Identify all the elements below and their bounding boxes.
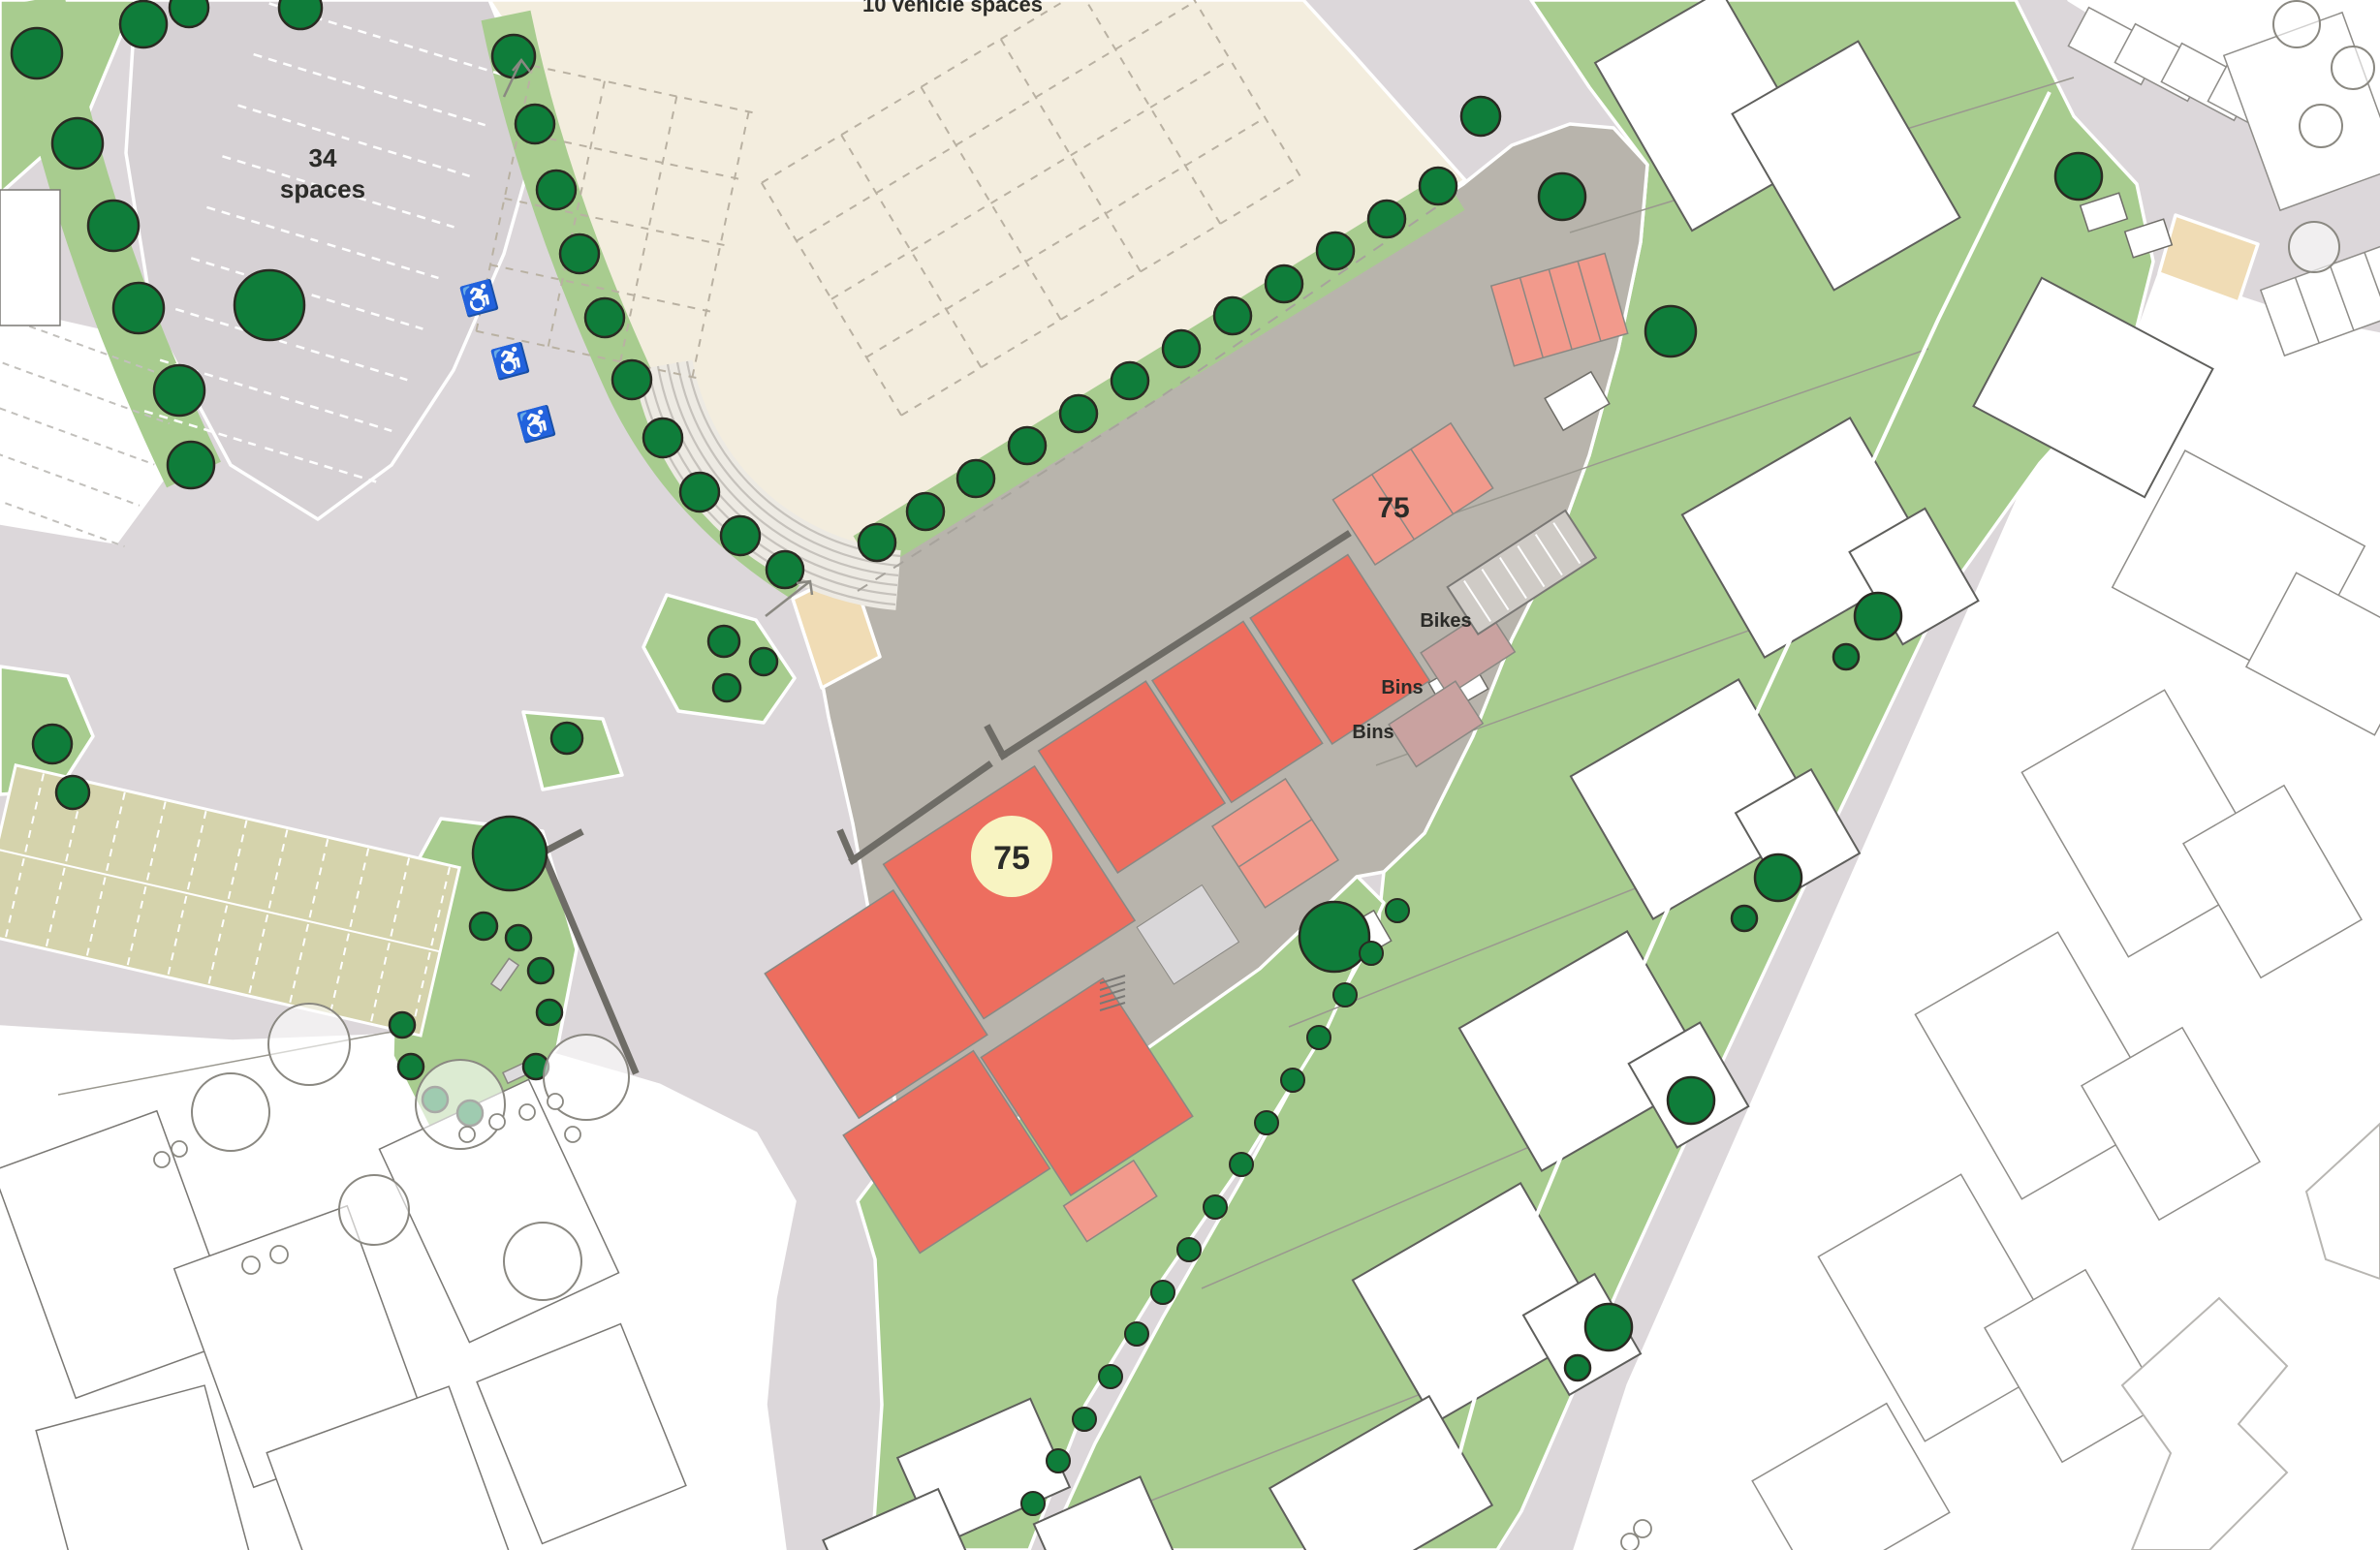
tree-dark-32 xyxy=(33,725,72,763)
tree-dark-34 xyxy=(551,723,582,754)
tree-dark-15 xyxy=(612,360,651,399)
tree-hedge-2 xyxy=(1333,983,1357,1007)
tree-dark-57 xyxy=(1585,1304,1632,1350)
tree-hedge-9 xyxy=(1151,1281,1174,1304)
label-10-vehicle-spaces: 10 vehicle spaces xyxy=(862,0,1043,16)
tree-dark-38 xyxy=(473,817,547,890)
tree-dark-44 xyxy=(390,1012,415,1038)
label-unit-75-carport: 75 xyxy=(1377,492,1409,524)
tree-dark-28 xyxy=(1266,265,1302,302)
label-unit-75-main: 75 xyxy=(993,840,1030,877)
tree-outline-2 xyxy=(339,1175,409,1245)
shrub-3 xyxy=(489,1114,505,1130)
tree-hedge-4 xyxy=(1281,1069,1304,1092)
tree-dark-52 xyxy=(1855,593,1901,639)
tree-hedge-11 xyxy=(1099,1365,1122,1388)
shrub-1 xyxy=(270,1246,288,1263)
tree-dark-37 xyxy=(713,674,740,701)
tree-dark-35 xyxy=(708,626,739,657)
label-bins-1: Bins xyxy=(1381,677,1423,698)
tree-hedge-0 xyxy=(1386,899,1409,922)
tree-dark-31 xyxy=(1420,168,1456,204)
tree-dark-30 xyxy=(1368,201,1405,237)
tree-dark-20 xyxy=(859,524,895,561)
tree-outline-6 xyxy=(2273,1,2320,47)
tree-hedge-5 xyxy=(1255,1111,1278,1134)
tree-dark-6 xyxy=(168,442,214,488)
site-plan-map: ♿♿♿10 vehicle spaces34spaces7575BikesBin… xyxy=(0,0,2380,1550)
tree-hedge-1 xyxy=(1360,942,1383,965)
tree-dark-16 xyxy=(643,418,682,457)
tree-dark-45 xyxy=(398,1054,423,1079)
tree-dark-18 xyxy=(721,516,760,555)
tree-dark-58 xyxy=(1565,1355,1590,1380)
house-bottom_left-6 xyxy=(0,190,60,325)
tree-dark-2 xyxy=(52,118,103,169)
tree-dark-21 xyxy=(907,493,944,530)
tree-outline-1 xyxy=(268,1004,350,1085)
tree-dark-4 xyxy=(113,283,164,333)
tree-dark-36 xyxy=(750,648,777,675)
tree-hedge-12 xyxy=(1073,1408,1096,1431)
label-34: 34 xyxy=(309,143,337,172)
tree-dark-41 xyxy=(528,958,553,983)
tree-dark-23 xyxy=(1009,427,1046,464)
tree-dark-56 xyxy=(1668,1077,1714,1124)
label-bikes: Bikes xyxy=(1420,610,1471,632)
tree-dark-22 xyxy=(957,460,994,497)
site-plan-page: ♿♿♿10 vehicle spaces34spaces7575BikesBin… xyxy=(0,0,2380,1550)
shrub-4 xyxy=(519,1104,535,1120)
tree-dark-42 xyxy=(537,1000,562,1025)
tree-hedge-13 xyxy=(1047,1449,1070,1472)
tree-dark-24 xyxy=(1060,395,1097,432)
tree-hedge-6 xyxy=(1230,1153,1253,1176)
shrub-10 xyxy=(172,1141,187,1157)
shrub-8 xyxy=(1634,1520,1651,1537)
tree-dark-12 xyxy=(537,170,576,209)
tree-dark-1 xyxy=(120,1,167,47)
tree-dark-26 xyxy=(1163,330,1200,367)
tree-outline-9 xyxy=(2289,222,2339,272)
tree-dark-55 xyxy=(1732,906,1757,931)
tree-hedge-3 xyxy=(1307,1026,1331,1049)
tree-dark-40 xyxy=(506,925,531,950)
tree-dark-50 xyxy=(1645,306,1696,356)
tree-dark-17 xyxy=(680,473,719,511)
shrub-7 xyxy=(1621,1534,1639,1550)
tree-dark-11 xyxy=(516,105,554,143)
tree-outline-5 xyxy=(504,1223,581,1300)
tree-dark-14 xyxy=(585,298,624,337)
tree-dark-27 xyxy=(1214,297,1251,334)
tree-outline-8 xyxy=(2300,105,2342,147)
tree-hedge-7 xyxy=(1204,1195,1227,1219)
tree-dark-48 xyxy=(1461,97,1500,136)
shrub-2 xyxy=(459,1127,475,1142)
label-bins-2: Bins xyxy=(1352,722,1394,743)
tree-dark-54 xyxy=(1755,854,1801,901)
label-34-spaces: spaces xyxy=(280,174,365,203)
shrub-5 xyxy=(548,1094,563,1109)
tree-dark-5 xyxy=(154,365,204,416)
tree-dark-25 xyxy=(1112,362,1148,399)
shrub-0 xyxy=(242,1256,260,1274)
shrub-9 xyxy=(154,1152,170,1167)
tree-hedge-14 xyxy=(1021,1492,1045,1515)
tree-dark-29 xyxy=(1317,232,1354,269)
shrub-6 xyxy=(565,1127,580,1142)
tree-dark-59 xyxy=(1300,902,1369,972)
tree-hedge-10 xyxy=(1125,1322,1148,1346)
tree-dark-3 xyxy=(88,201,139,251)
tree-dark-51 xyxy=(2055,153,2102,200)
tree-dark-13 xyxy=(560,234,599,273)
tree-dark-7 xyxy=(235,270,304,340)
tree-dark-49 xyxy=(1539,173,1585,220)
tree-dark-53 xyxy=(1833,644,1859,669)
tree-hedge-8 xyxy=(1177,1238,1201,1261)
tree-dark-0 xyxy=(12,28,62,78)
tree-dark-8 xyxy=(170,0,208,27)
tree-dark-39 xyxy=(470,913,497,940)
tree-outline-0 xyxy=(192,1073,269,1151)
tree-dark-33 xyxy=(56,776,89,809)
tree-outline-7 xyxy=(2332,46,2374,89)
